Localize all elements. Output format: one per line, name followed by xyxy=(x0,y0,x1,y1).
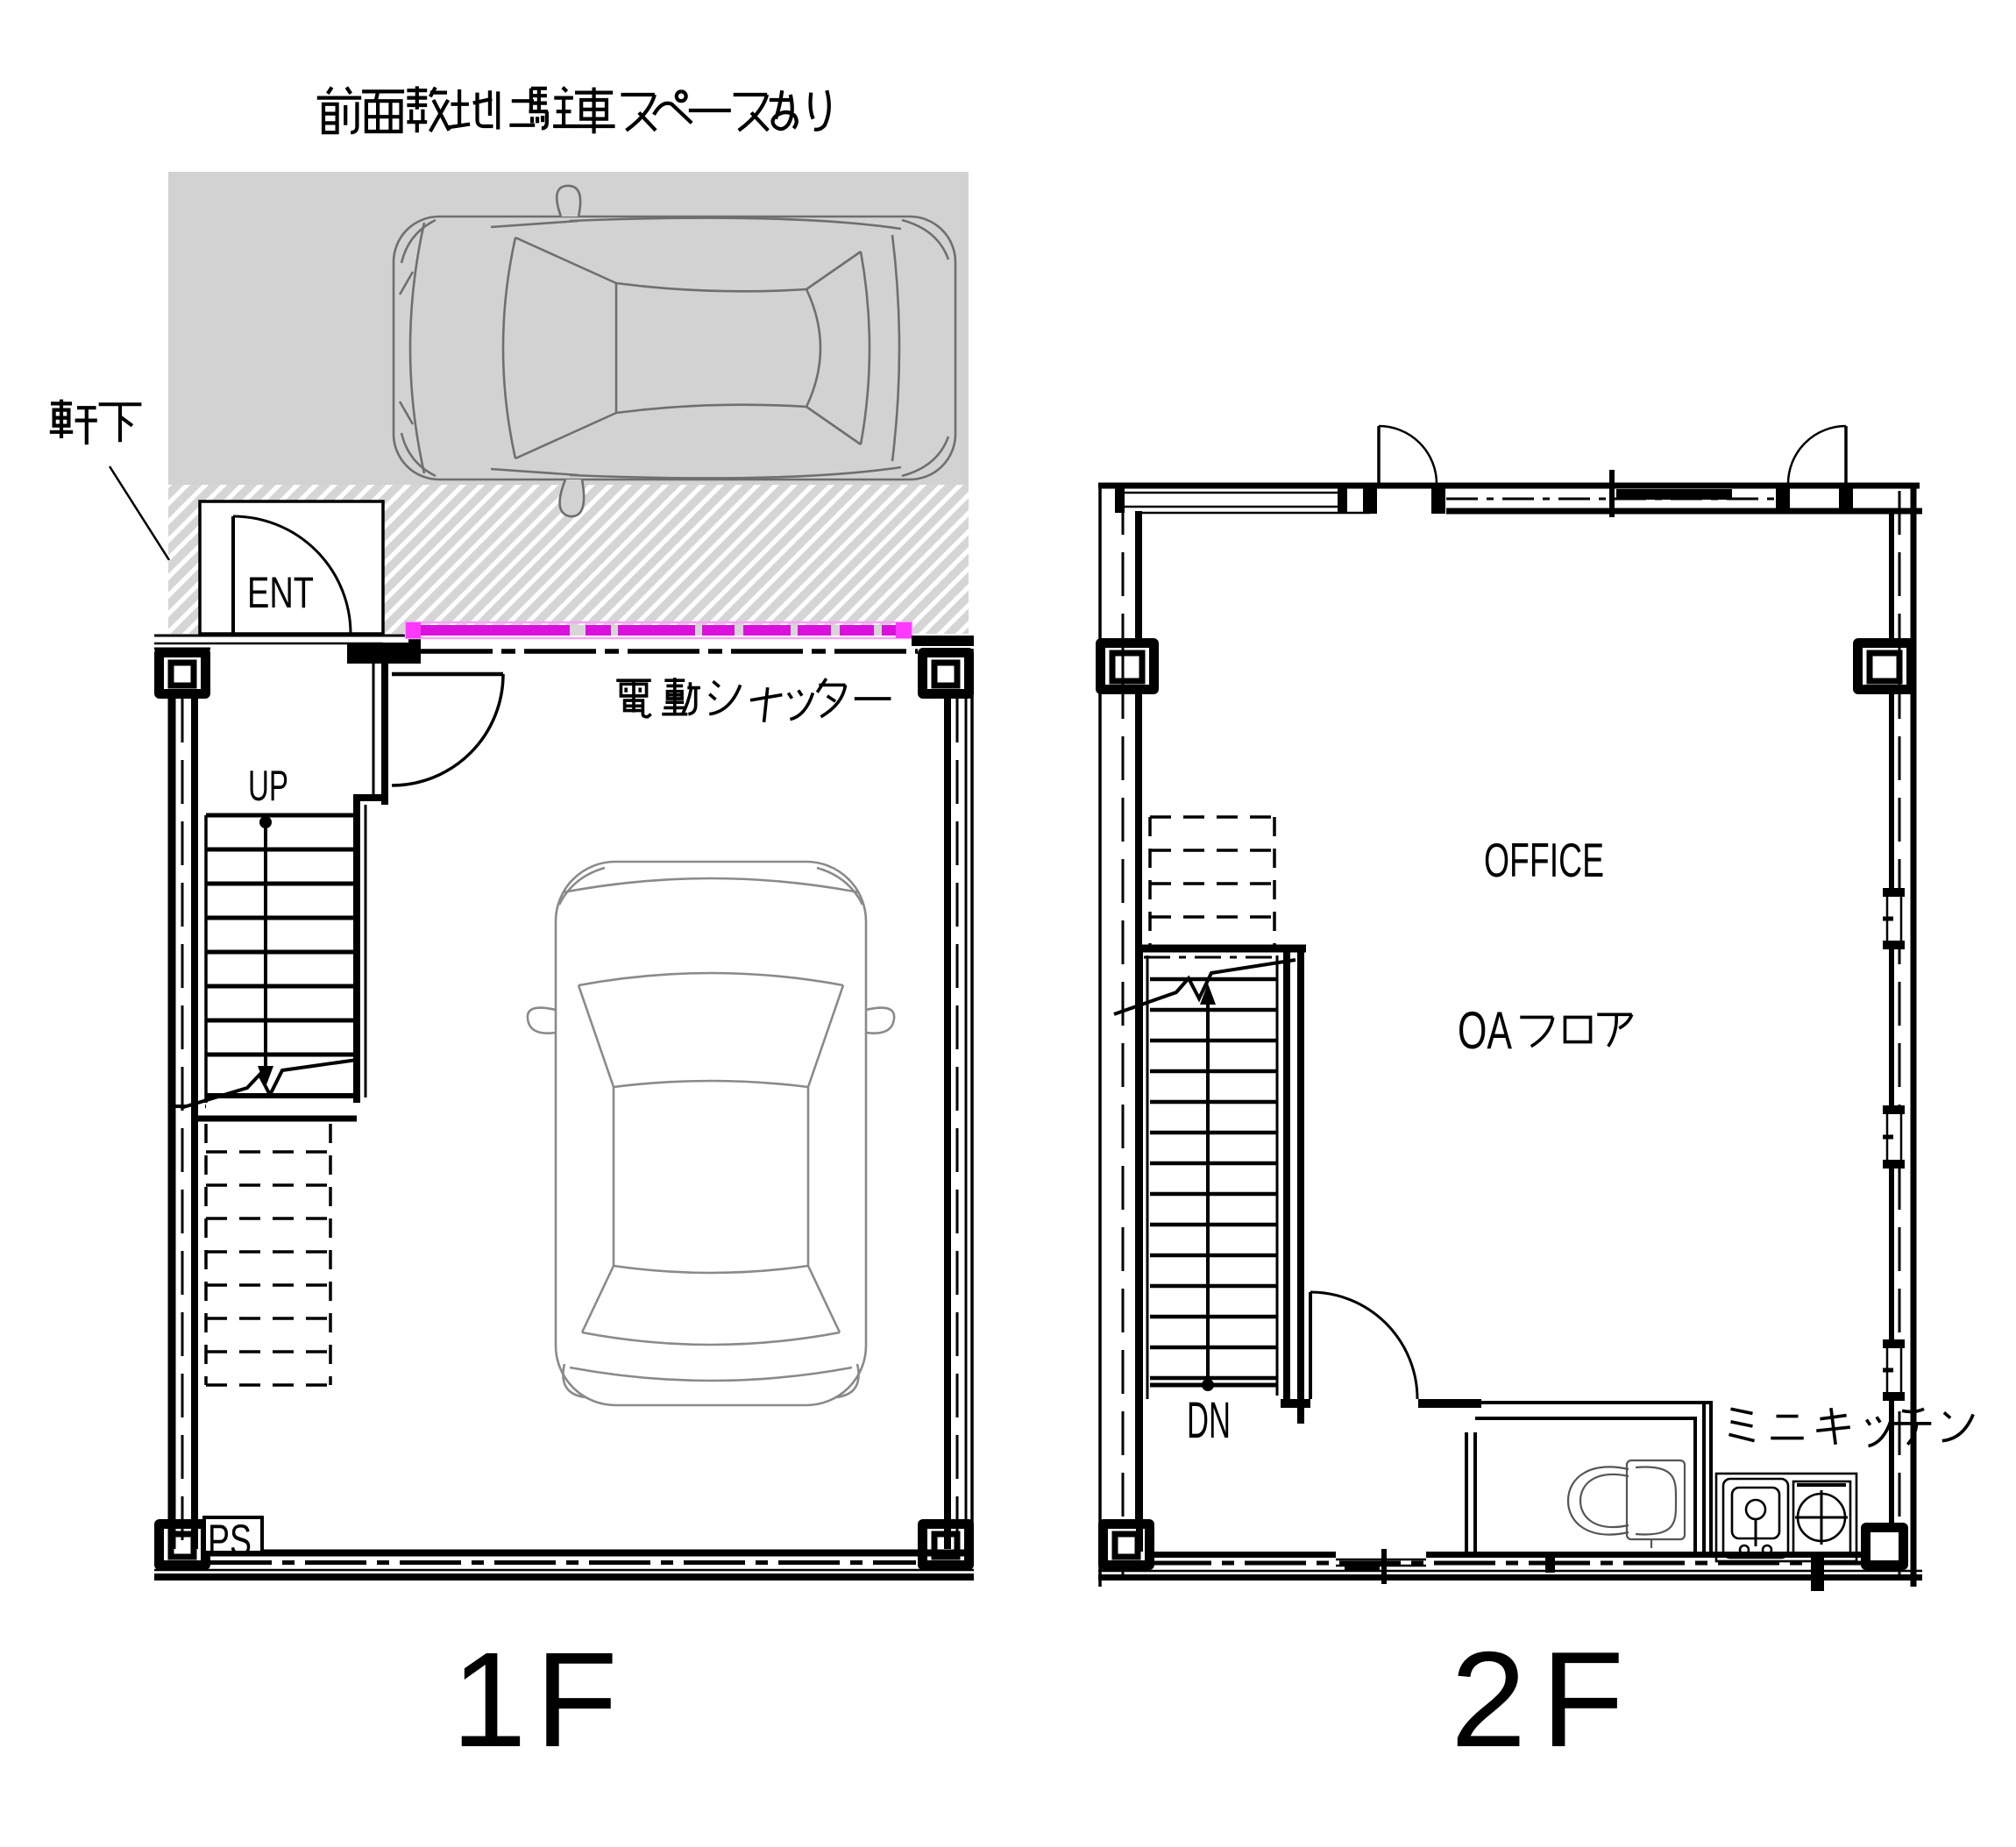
svg-text:1F: 1F xyxy=(451,1624,627,1775)
svg-text:OFFICE: OFFICE xyxy=(1484,833,1604,887)
svg-text:DN: DN xyxy=(1187,1392,1231,1449)
svg-text:2F: 2F xyxy=(1451,1623,1639,1775)
svg-text:UP: UP xyxy=(248,763,288,810)
svg-text:PS: PS xyxy=(208,1516,252,1565)
svg-text:OA: OA xyxy=(1458,1001,1512,1060)
svg-text:ENT: ENT xyxy=(247,568,314,617)
